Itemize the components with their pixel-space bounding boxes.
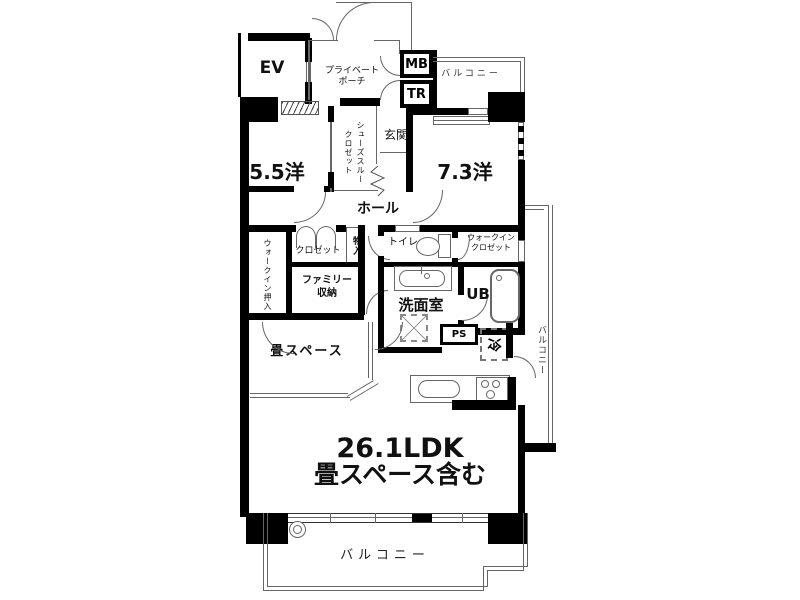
balcony-edge bbox=[267, 513, 268, 587]
window-tick bbox=[375, 513, 376, 523]
refrigerator-space: 冷 bbox=[480, 328, 508, 361]
bathtub-drain bbox=[496, 275, 502, 281]
door-arc bbox=[413, 190, 443, 223]
wall bbox=[420, 225, 525, 232]
window-line bbox=[288, 517, 488, 518]
accordion-door bbox=[370, 166, 385, 197]
balcony-edge bbox=[487, 570, 524, 571]
window bbox=[518, 240, 525, 262]
room-label-balcony-top: バルコニー bbox=[435, 69, 507, 80]
wall bbox=[408, 108, 470, 115]
pipe-space-box: PS bbox=[440, 324, 478, 345]
meter-box: MB bbox=[400, 50, 433, 78]
wall bbox=[452, 400, 516, 410]
room-label-balcony-bottom: バルコニー bbox=[330, 548, 440, 564]
balcony-edge bbox=[525, 209, 544, 210]
balcony-edge bbox=[552, 205, 553, 450]
balcony-edge bbox=[487, 570, 488, 587]
washing-machine-space bbox=[400, 314, 428, 342]
balcony-edge bbox=[525, 205, 548, 206]
drain-circle-inner bbox=[293, 525, 302, 534]
vanity-basin bbox=[399, 270, 445, 287]
door-arc bbox=[294, 192, 326, 223]
room-label-balcony-right: バルコニー bbox=[532, 318, 546, 382]
wall bbox=[378, 225, 384, 236]
wall bbox=[378, 347, 442, 353]
balcony-edge bbox=[523, 513, 524, 571]
balcony-edge bbox=[433, 57, 525, 58]
bifold-door-arc bbox=[296, 226, 316, 248]
window-dash bbox=[518, 138, 524, 144]
trunk-room-box: TR bbox=[400, 80, 433, 108]
balcony-edge bbox=[267, 586, 488, 587]
wall bbox=[458, 262, 525, 267]
wall bbox=[518, 405, 525, 515]
elevator-door-line bbox=[306, 62, 307, 82]
line bbox=[336, 2, 412, 3]
window-tick bbox=[462, 513, 463, 523]
line bbox=[376, 106, 377, 164]
wall bbox=[506, 323, 513, 358]
door-arc bbox=[375, 322, 403, 350]
window-lock bbox=[412, 514, 432, 522]
toilet-bowl bbox=[416, 237, 440, 256]
wall bbox=[238, 33, 241, 97]
partition-line bbox=[372, 322, 373, 380]
pillar bbox=[488, 513, 528, 544]
room-label-5-5: 5.5洋 bbox=[235, 160, 319, 185]
faucet-knob bbox=[424, 273, 430, 279]
partition-line bbox=[250, 393, 348, 394]
entrance-hatch bbox=[281, 101, 319, 115]
room-label-shoes-closet: シューズスルー クロゼット bbox=[340, 112, 366, 192]
door-arc bbox=[336, 2, 374, 40]
wall bbox=[244, 313, 364, 320]
floor-plan: EV プライベート ポーチ MB TR バルコニー 5.5洋 シューズスルー ク… bbox=[0, 0, 800, 600]
room-label-private-porch: プライベート ポーチ bbox=[310, 66, 394, 89]
wall bbox=[286, 232, 292, 314]
pillar bbox=[488, 92, 525, 122]
wall bbox=[518, 443, 556, 452]
window-dash bbox=[518, 150, 524, 156]
door-arc bbox=[366, 290, 388, 314]
wall bbox=[244, 186, 294, 192]
room-label-elevator: EV bbox=[250, 58, 294, 79]
window-dash bbox=[518, 126, 524, 132]
balcony-edge bbox=[263, 513, 264, 591]
window bbox=[468, 108, 488, 115]
room-label-toilet: トイレ bbox=[386, 237, 420, 250]
burner bbox=[492, 380, 500, 388]
balcony-edge bbox=[483, 566, 484, 591]
bathtub bbox=[490, 269, 520, 323]
room-label-hall: ホール bbox=[350, 201, 406, 219]
wall bbox=[518, 232, 525, 240]
wall bbox=[358, 225, 365, 315]
room-label-closet: クロゼット bbox=[292, 246, 344, 257]
burner bbox=[486, 390, 495, 399]
wall bbox=[244, 225, 296, 232]
partition-line bbox=[250, 397, 350, 398]
room-label-walk-in-oshiire: ウォークイン押入 bbox=[258, 236, 272, 314]
wall bbox=[406, 106, 413, 192]
partition-line bbox=[368, 322, 369, 378]
door-arc bbox=[312, 18, 334, 40]
wall bbox=[248, 33, 310, 41]
balcony-edge bbox=[483, 566, 528, 567]
wall bbox=[518, 160, 525, 232]
window-tick bbox=[330, 513, 331, 523]
burner bbox=[481, 380, 489, 388]
room-label-washroom: 洗面室 bbox=[388, 296, 454, 315]
room-label-refrigerator: 冷 bbox=[484, 338, 504, 352]
kitchen-sink bbox=[418, 380, 460, 398]
balcony-edge bbox=[548, 205, 549, 445]
balcony-edge bbox=[527, 513, 528, 567]
line bbox=[308, 40, 338, 41]
wall bbox=[340, 98, 380, 106]
balcony-edge bbox=[263, 590, 484, 591]
wall bbox=[292, 262, 358, 267]
room-label-7-3: 7.3洋 bbox=[423, 160, 507, 185]
window bbox=[395, 225, 420, 232]
wall bbox=[328, 172, 334, 188]
line bbox=[374, 40, 400, 41]
bifold-door-arc bbox=[316, 226, 336, 248]
room-label-walk-in-closet: ウォークイン クロゼット bbox=[460, 233, 522, 253]
line bbox=[411, 2, 412, 53]
line bbox=[334, 190, 378, 191]
window-line bbox=[433, 120, 490, 121]
sliding-window bbox=[288, 513, 488, 523]
balcony-edge bbox=[524, 57, 525, 93]
room-label-family-storage: ファミリー 収納 bbox=[294, 274, 360, 300]
wall bbox=[328, 106, 334, 122]
balcony-edge bbox=[433, 61, 521, 62]
wall bbox=[336, 225, 346, 232]
balcony-edge bbox=[520, 61, 521, 93]
room-label-ldk-line2: 畳スペース含む bbox=[295, 459, 505, 490]
room-label-unit-bath: UB bbox=[464, 285, 492, 304]
faucet bbox=[421, 266, 422, 274]
